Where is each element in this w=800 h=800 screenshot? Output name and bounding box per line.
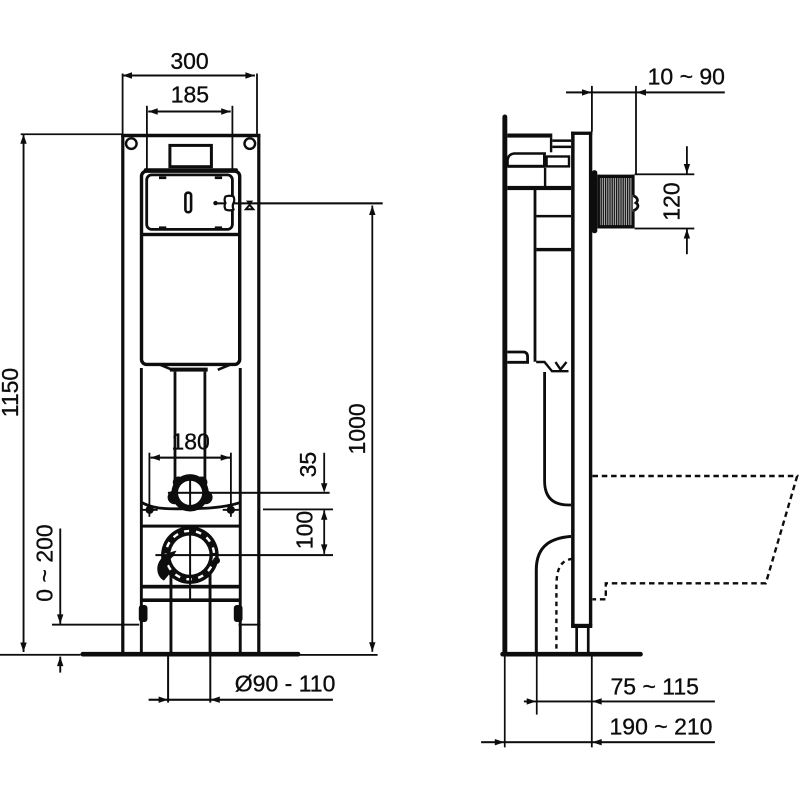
svg-text:185: 185 [171, 82, 209, 108]
svg-text:1000: 1000 [344, 403, 370, 454]
svg-text:180: 180 [171, 429, 209, 455]
svg-text:190 ~ 210: 190 ~ 210 [610, 713, 713, 739]
svg-text:100: 100 [292, 511, 318, 549]
svg-text:0 ~ 200: 0 ~ 200 [31, 524, 57, 601]
svg-text:120: 120 [659, 182, 685, 220]
svg-text:1150: 1150 [0, 368, 23, 417]
svg-text:Ø90 - 110: Ø90 - 110 [235, 671, 336, 697]
svg-text:10 ~ 90: 10 ~ 90 [648, 64, 725, 90]
svg-text:35: 35 [295, 452, 321, 478]
svg-text:300: 300 [170, 48, 208, 74]
svg-text:75 ~ 115: 75 ~ 115 [611, 673, 699, 699]
